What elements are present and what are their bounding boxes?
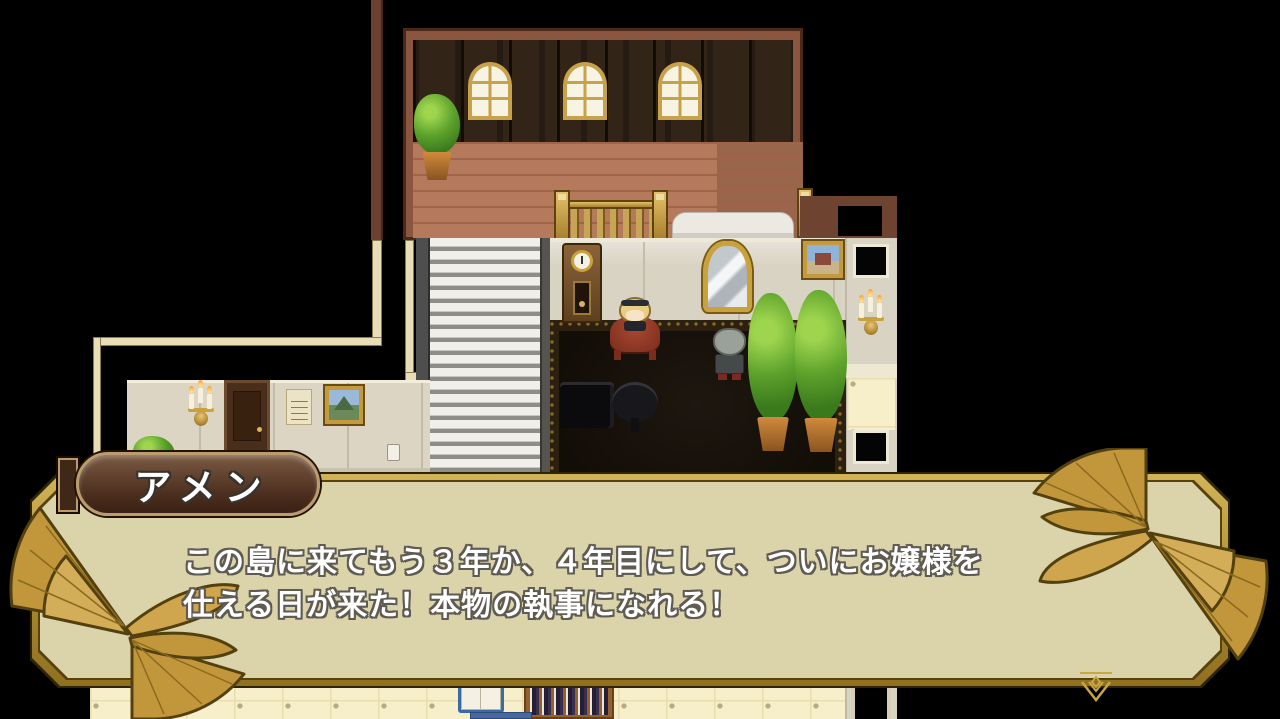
arched-window-icon [563, 62, 607, 120]
gold-mirror-icon [703, 241, 752, 312]
wall-trim [93, 337, 382, 346]
arched-window-icon [658, 62, 702, 120]
stair-rail [540, 238, 550, 480]
notice-poster [286, 389, 312, 425]
railing-post [554, 190, 570, 240]
balcony-edge [800, 196, 897, 240]
potted-plant-icon [748, 293, 798, 451]
painting-icon [803, 241, 843, 278]
npc-maid [616, 297, 654, 331]
black-piano [560, 382, 614, 428]
wall-opening [853, 244, 889, 278]
name-box-tab [58, 458, 78, 512]
candle-sconce-icon [186, 383, 216, 431]
advance-indicator-icon[interactable] [1076, 668, 1116, 706]
wall-trim [372, 240, 382, 344]
round-table [612, 382, 658, 422]
wall-opening [853, 430, 889, 464]
blue-table-edge [470, 712, 532, 719]
dialogue-text: この島に来てもう３年か、４年目にして、ついにお嬢様を 仕える日が来た！本物の執事… [183, 541, 1083, 627]
white-sofa [672, 212, 794, 240]
railing-post [652, 190, 668, 240]
wall-trim [93, 337, 101, 467]
potted-plant-icon [795, 290, 847, 452]
dialogue-line-2: 仕える日が来た！本物の執事になれる！ [183, 584, 1083, 627]
potted-plant-icon [414, 94, 460, 180]
staircase [430, 238, 540, 505]
dialogue-line-1: この島に来てもう３年か、４年目にして、ついにお嬢様を [183, 541, 1083, 584]
wall-base-trim [845, 364, 897, 378]
game-screen: アメン この島に来てもう３年か、４年目にして、ついにお嬢様を 仕える日が来た！本… [0, 0, 1280, 719]
wall-outlet [387, 444, 400, 461]
tile-floor [847, 378, 895, 430]
name-box: アメン [76, 452, 320, 516]
speaker-name: アメン [79, 455, 317, 513]
painting-icon [325, 386, 363, 424]
npc-butler [711, 328, 748, 380]
wall-trim [405, 240, 414, 380]
wall-pillar [371, 0, 383, 240]
balcony-balusters [558, 209, 666, 239]
grandfather-clock-icon [562, 243, 602, 323]
candle-sconce-icon [856, 292, 886, 340]
arched-window-icon [468, 62, 512, 120]
